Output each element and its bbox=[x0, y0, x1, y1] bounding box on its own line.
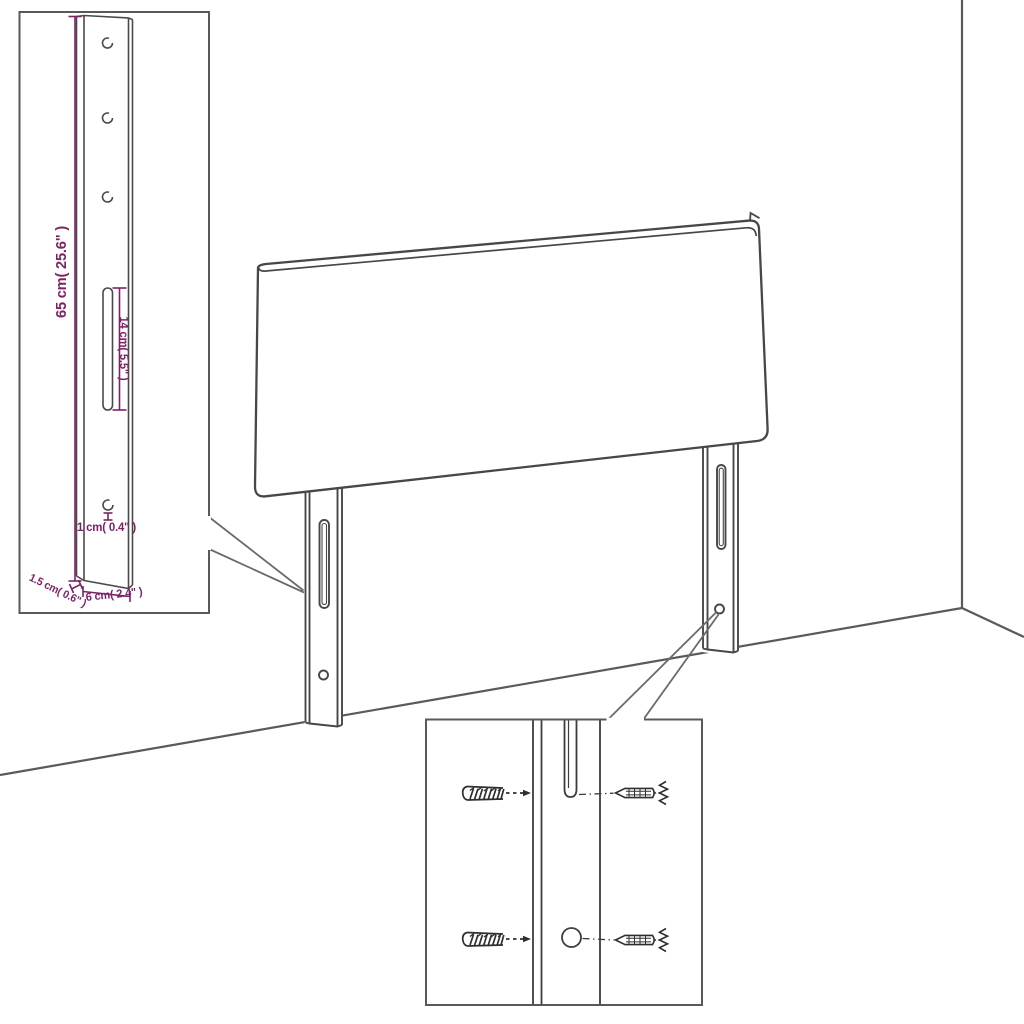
mounting-detail-callout bbox=[426, 720, 702, 1006]
leg-detail-callout: 65 cm( 25.6" ) 14 cm( 5.5" ) 1 cm( 0.4" … bbox=[20, 12, 210, 613]
dimension-label-height: 65 cm( 25.6" ) bbox=[54, 226, 70, 318]
left-leg bbox=[305, 484, 344, 729]
headboard-panel bbox=[255, 213, 768, 496]
dimension-label-slot: 14 cm( 5.5" ) bbox=[117, 317, 131, 381]
headboard-top-back-edge bbox=[750, 213, 760, 221]
floor-line-right bbox=[962, 608, 1024, 637]
headboard-front-face bbox=[255, 221, 768, 497]
diagram-canvas: 65 cm( 25.6" ) 14 cm( 5.5" ) 1 cm( 0.4" … bbox=[0, 0, 1024, 1024]
dimension-label-hole: 1 cm( 0.4" ) bbox=[77, 522, 136, 534]
leg-callout-leader bbox=[209, 517, 304, 593]
assembly-diagram: 65 cm( 25.6" ) 14 cm( 5.5" ) 1 cm( 0.4" … bbox=[0, 0, 1024, 1024]
right-leg bbox=[702, 441, 739, 657]
